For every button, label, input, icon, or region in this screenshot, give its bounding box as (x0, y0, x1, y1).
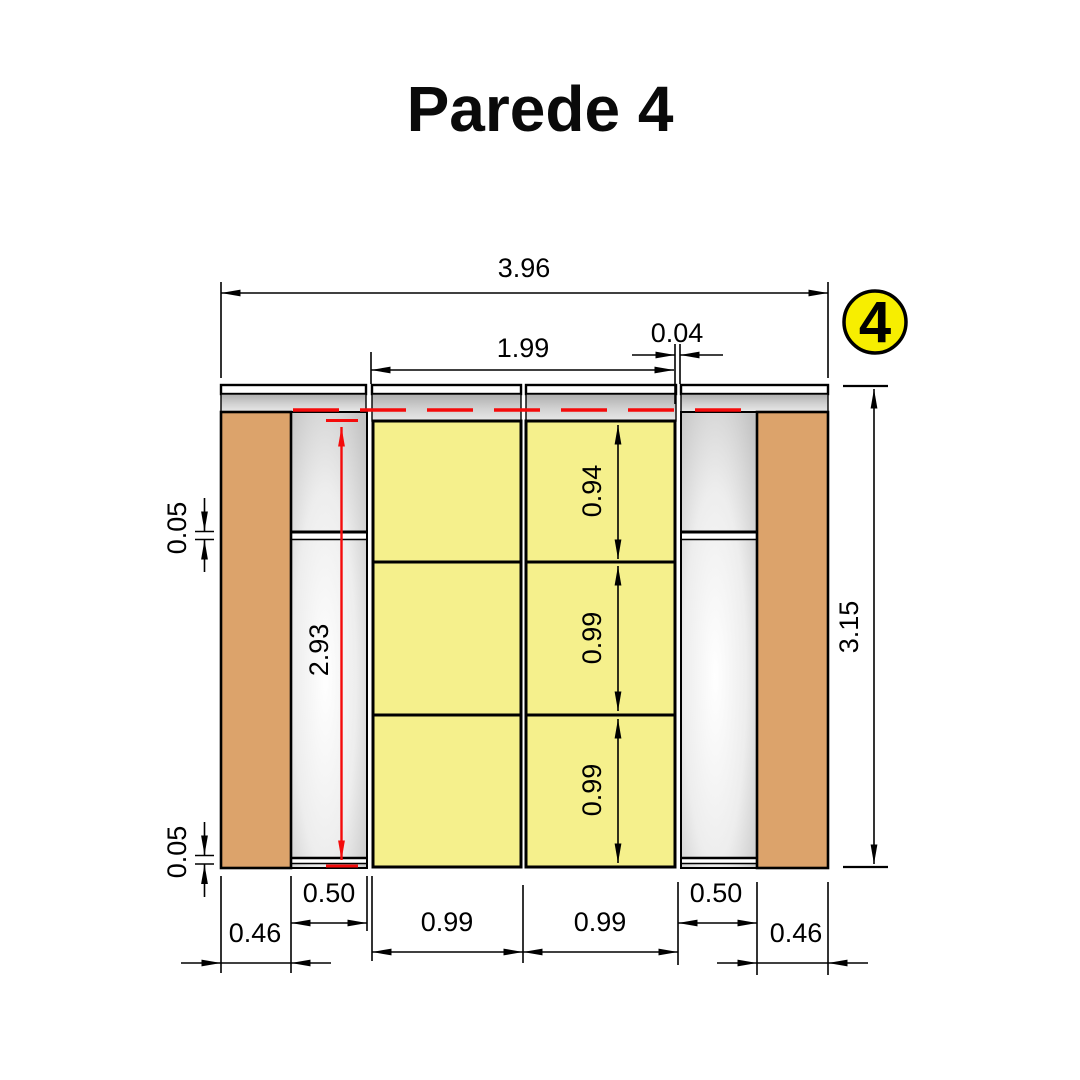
dim-label-wall-height: 3.15 (834, 601, 864, 654)
wall-elevation-drawing: 2.93 3.96 1.99 0.04 3.15 (0, 0, 1080, 1080)
top-strip-segment (681, 385, 828, 394)
dim-label-row3: 0.99 (577, 764, 607, 817)
joint-band-right-bottom (681, 858, 757, 864)
dim-label-row1: 0.94 (577, 465, 607, 518)
top-strip-segment (221, 385, 366, 394)
dim-wall-height: 3.15 (834, 386, 888, 867)
panel-row2-col1 (373, 562, 521, 715)
dim-label-joint-bottom: 0.05 (162, 826, 192, 879)
dim-inner-width: 1.99 (371, 333, 674, 384)
dim-bottom-050-right: 0.50 (678, 878, 757, 923)
silver-panels (291, 412, 757, 868)
yellow-panels (373, 421, 675, 867)
dim-label-overall-width: 3.96 (498, 253, 551, 283)
dim-bottom-099-right: 0.99 (523, 907, 678, 952)
panel-row1-col1 (373, 421, 521, 562)
top-strip-segment (526, 385, 676, 394)
dim-label-bottom-099-right: 0.99 (574, 907, 627, 937)
dim-label-bottom-046-left: 0.46 (229, 918, 282, 948)
dim-label-bottom-099-left: 0.99 (421, 907, 474, 937)
dim-label-red-height: 2.93 (304, 624, 334, 677)
dim-joint-top: 0.05 (162, 498, 214, 572)
dim-bottom-046-right: 0.46 (717, 918, 868, 963)
dim-joint-bottom: 0.05 (162, 822, 214, 897)
joint-band-left-bottom (291, 858, 367, 864)
stud-left (221, 412, 291, 868)
panel-row3-col1 (373, 715, 521, 867)
top-band-segment (526, 394, 676, 421)
dim-label-bottom-046-right: 0.46 (770, 918, 823, 948)
stud-right (757, 412, 828, 868)
badge-number: 4 (859, 290, 891, 355)
top-band-segment (372, 394, 521, 421)
joint-band-right-top (681, 532, 757, 540)
dim-bottom-099-left: 0.99 (372, 907, 523, 952)
dim-bottom-050-left: 0.50 (291, 878, 367, 923)
drawing-canvas: Parede 4 (0, 0, 1080, 1080)
dim-label-row2: 0.99 (577, 612, 607, 665)
top-strip-segment (372, 385, 521, 394)
dim-label-bottom-050-left: 0.50 (303, 878, 356, 908)
dim-label-bottom-050-right: 0.50 (690, 878, 743, 908)
dim-label-inner-width: 1.99 (497, 333, 550, 363)
wall-number-badge: 4 (844, 290, 906, 355)
dim-label-gap: 0.04 (651, 318, 704, 348)
joint-band-left-top (291, 532, 367, 540)
silver-panel-right (681, 412, 757, 868)
dim-bottom-046-left: 0.46 (181, 918, 331, 963)
dim-label-joint-top: 0.05 (162, 502, 192, 555)
